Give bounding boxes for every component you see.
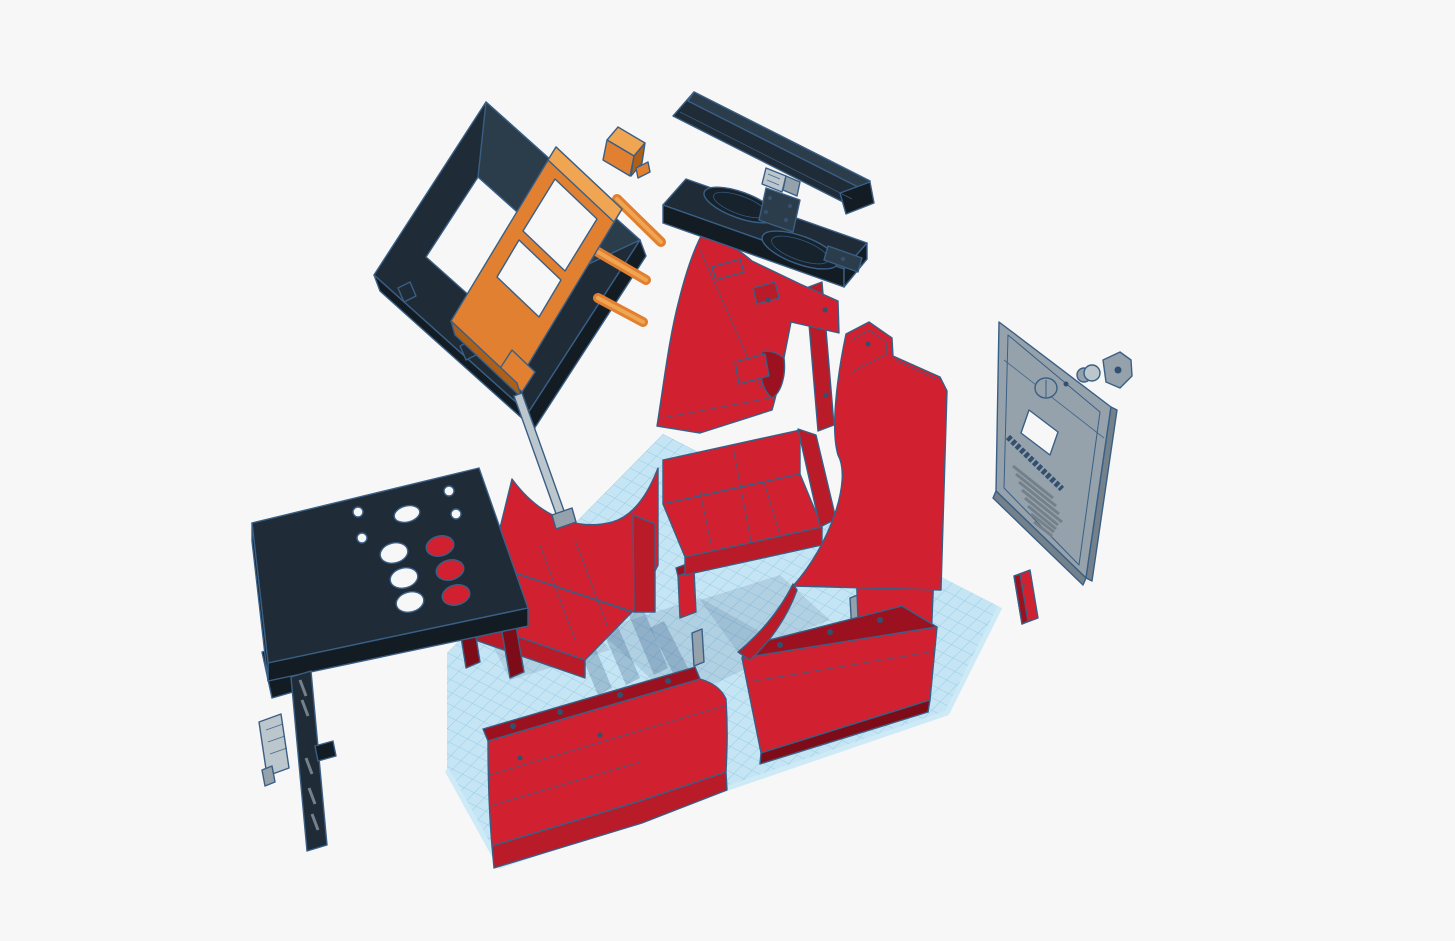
cad-viewport[interactable] xyxy=(0,0,1455,941)
scene-canvas[interactable] xyxy=(0,0,1455,941)
